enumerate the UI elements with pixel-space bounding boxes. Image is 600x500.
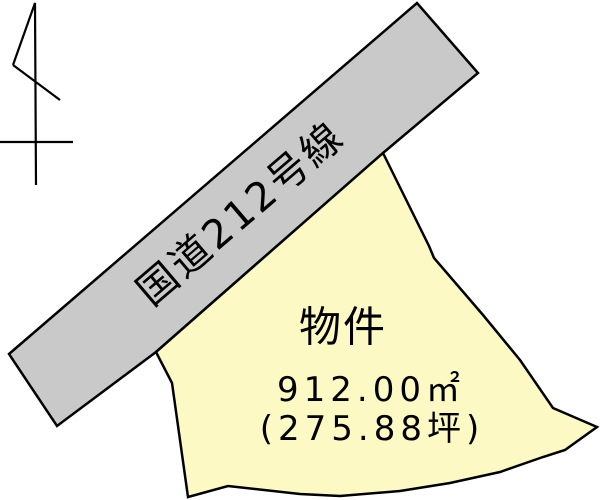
north-arrow-mast — [13, 3, 36, 185]
parcel-area-m2: 912.00㎡ — [277, 370, 465, 410]
site-map-drawing: 国道212号線 物件 912.00㎡ (275.88坪) — [0, 0, 600, 500]
parcel-area-tsubo: (275.88坪) — [260, 409, 485, 449]
site-map-canvas: 国道212号線 物件 912.00㎡ (275.88坪) — [0, 0, 600, 500]
north-arrow-icon — [0, 3, 73, 185]
parcel-label: 物件 — [299, 303, 387, 352]
